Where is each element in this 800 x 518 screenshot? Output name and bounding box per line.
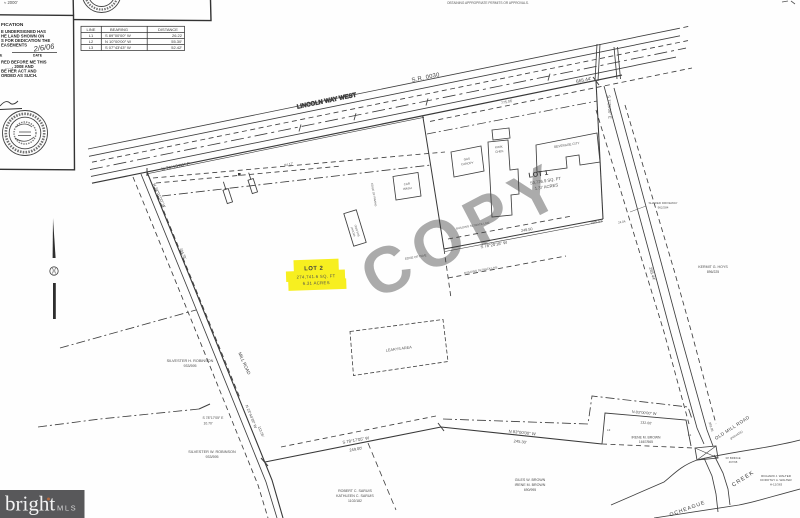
- svg-text:1667/565: 1667/565: [639, 440, 653, 444]
- svg-text:690/995: 690/995: [524, 488, 536, 492]
- svg-text:962/284: 962/284: [658, 206, 669, 210]
- svg-text:S 78°17′05″ E: S 78°17′05″ E: [203, 416, 225, 420]
- svg-text:S 89°00′00″ W: S 89°00′00″ W: [105, 33, 131, 38]
- svg-text:L1: L1: [688, 433, 692, 437]
- svg-text:S 07°43′43″ W: S 07°43′43″ W: [105, 45, 131, 50]
- svg-text:933/595: 933/595: [206, 455, 219, 459]
- svg-text:LINE: LINE: [87, 27, 96, 32]
- svg-text:DATE: DATE: [33, 54, 43, 58]
- svg-text:L3: L3: [89, 45, 94, 50]
- svg-text:GILES W. BROWN: GILES W. BROWN: [515, 478, 546, 482]
- svg-text:1102/182: 1102/182: [348, 499, 362, 503]
- svg-text:N 10°00′00″ W: N 10°00′00″ W: [105, 39, 131, 44]
- svg-text:26.22: 26.22: [172, 33, 183, 38]
- svg-text:52.42′: 52.42′: [171, 45, 182, 50]
- svg-text:IRENE M. BROWN: IRENE M. BROWN: [515, 483, 546, 487]
- svg-text:IRENE M. BROWN: IRENE M. BROWN: [631, 436, 661, 440]
- svg-text:55.30′: 55.30′: [171, 39, 182, 44]
- svg-text:DISTANCE: DISTANCE: [158, 27, 178, 32]
- svg-text:≈ 2000′: ≈ 2000′: [4, 0, 18, 5]
- svg-text:SILVESTER W. ROBINSON: SILVESTER W. ROBINSON: [188, 450, 236, 454]
- svg-text:KATHLEEN C. SARUIS: KATHLEEN C. SARUIS: [336, 494, 374, 498]
- svg-text:L1: L1: [89, 33, 94, 38]
- svg-text:bright: bright: [5, 492, 55, 516]
- svg-text:SHARED DRIVEWAY: SHARED DRIVEWAY: [648, 201, 677, 205]
- svg-text:467/98: 467/98: [729, 460, 738, 464]
- svg-text:ROBERT C. SARUIS: ROBERT C. SARUIS: [338, 489, 372, 493]
- svg-text:OBTAINING APPROPRIATE PERMITS: OBTAINING APPROPRIATE PERMITS OR APPROVA…: [447, 1, 529, 5]
- svg-text:EASEMENTS: EASEMENTS: [1, 43, 27, 48]
- svg-text:896/225: 896/225: [707, 270, 719, 274]
- svg-text:ORDED AS SUCH.: ORDED AS SUCH.: [1, 73, 37, 78]
- svg-text:L3: L3: [607, 428, 611, 432]
- svg-text:10.70′: 10.70′: [203, 422, 212, 426]
- svg-text:H-12/363: H-12/363: [770, 482, 783, 486]
- svg-text:FICATION: FICATION: [1, 22, 24, 28]
- svg-text:933/595: 933/595: [184, 364, 197, 368]
- svg-text:MLS: MLS: [57, 504, 77, 513]
- svg-text:KERMIT G. HOYS: KERMIT G. HOYS: [698, 265, 728, 269]
- svg-text:LOT 2: LOT 2: [304, 266, 324, 273]
- svg-text:BEARING: BEARING: [110, 27, 128, 32]
- svg-text:SILVESTER H. ROBINSON: SILVESTER H. ROBINSON: [167, 359, 214, 363]
- svg-text:6.31 ACRES: 6.31 ACRES: [303, 280, 330, 286]
- svg-text:L2: L2: [89, 39, 94, 44]
